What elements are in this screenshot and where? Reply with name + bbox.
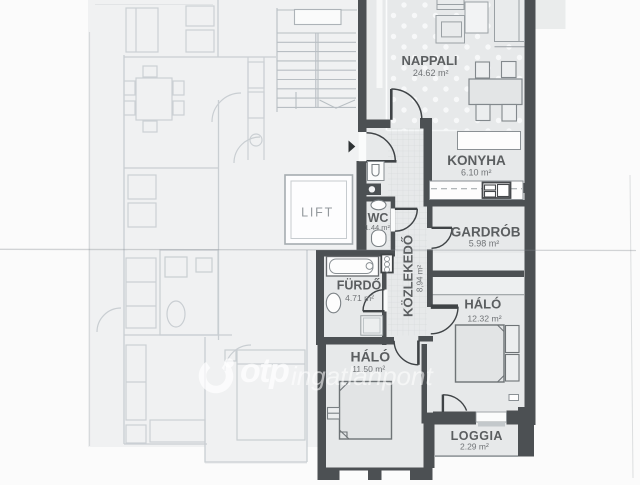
- svg-text:12.32 m²: 12.32 m²: [467, 313, 501, 323]
- svg-text:5.98 m²: 5.98 m²: [469, 239, 500, 249]
- svg-text:KÖZLEKEDŐ: KÖZLEKEDŐ: [401, 235, 416, 317]
- svg-text:6.10 m²: 6.10 m²: [461, 167, 492, 177]
- svg-text:1.44 m²: 1.44 m²: [365, 223, 391, 232]
- svg-text:GARDRÓB: GARDRÓB: [451, 225, 521, 240]
- svg-text:NAPPALI: NAPPALI: [401, 53, 457, 68]
- svg-text:KONYHA: KONYHA: [447, 153, 506, 168]
- svg-text:2.29 m²: 2.29 m²: [460, 442, 489, 452]
- svg-text:24.62 m²: 24.62 m²: [413, 68, 449, 78]
- svg-text:otp: otp: [240, 352, 289, 390]
- svg-text:4.71 m²: 4.71 m²: [345, 293, 374, 303]
- svg-text:8,94 m²: 8,94 m²: [416, 265, 425, 292]
- svg-text:HÁLÓ: HÁLÓ: [464, 297, 501, 312]
- svg-text:LIFT: LIFT: [301, 206, 334, 220]
- svg-text:ingatlanpont: ingatlanpont: [291, 361, 434, 391]
- svg-text:FÜRDŐ: FÜRDŐ: [337, 277, 382, 292]
